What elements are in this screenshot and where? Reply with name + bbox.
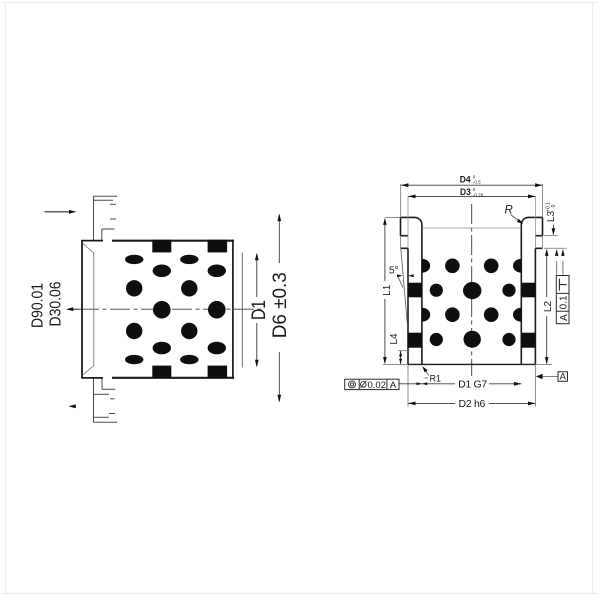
svg-text:0.02: 0.02 [368,380,387,391]
svg-text:L1: L1 [382,284,393,296]
svg-text:D2 h6: D2 h6 [459,398,486,410]
svg-text:R1: R1 [430,373,442,383]
svg-text:R: R [505,205,513,217]
svg-text:-0.5: -0.5 [473,180,481,185]
svg-text:D1 G7: D1 G7 [458,378,487,390]
svg-text:-0.26: -0.26 [473,192,484,197]
svg-text:L2: L2 [543,301,554,313]
svg-text:0: 0 [551,204,557,207]
svg-text:D1: D1 [248,300,270,320]
svg-text:A: A [560,372,567,383]
svg-text:D90.01: D90.01 [30,283,47,328]
svg-text:A: A [559,314,570,321]
svg-text:A: A [390,380,397,391]
svg-text:L4: L4 [389,333,400,345]
svg-text:0.1: 0.1 [559,295,570,309]
svg-text:D4: D4 [460,174,471,184]
svg-text:D3: D3 [460,187,471,197]
svg-text:D30.06: D30.06 [48,282,65,327]
svg-text:D6 ±0.3: D6 ±0.3 [269,272,291,338]
